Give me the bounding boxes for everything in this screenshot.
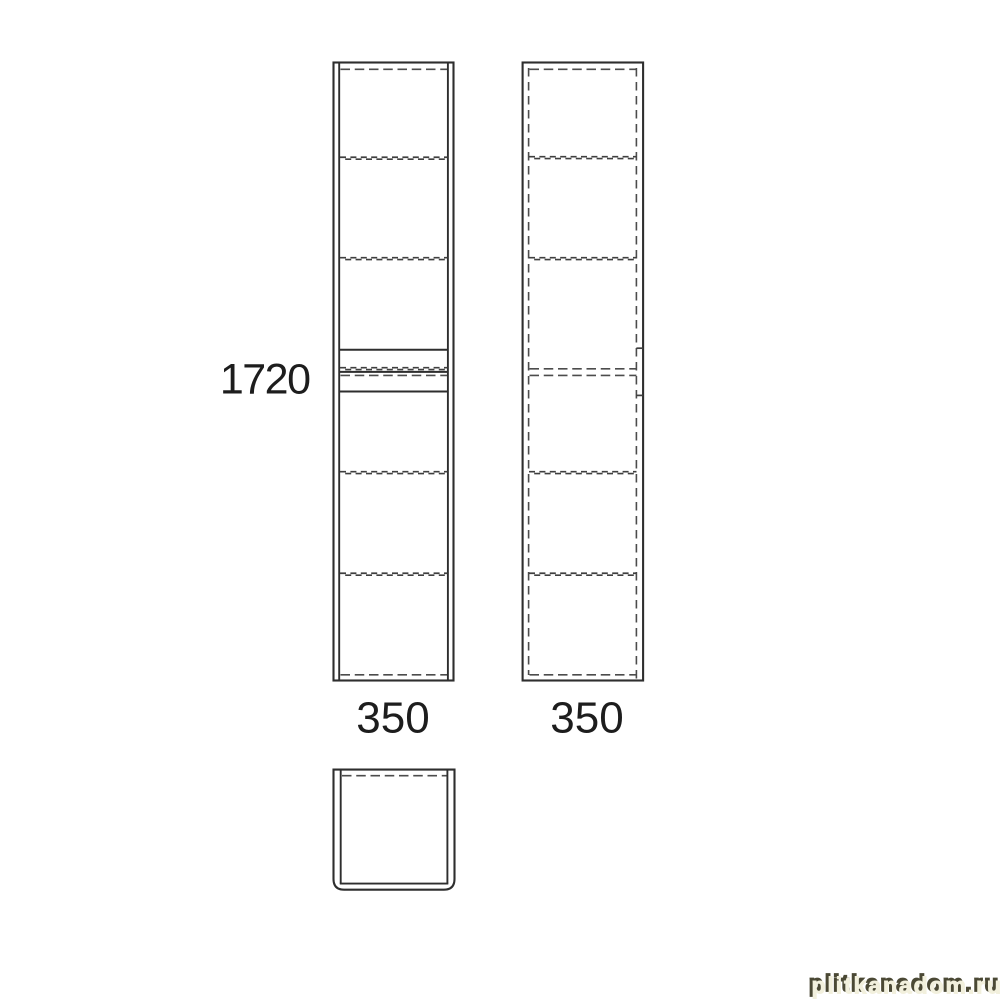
svg-text:350: 350: [550, 694, 623, 743]
svg-text:1720: 1720: [220, 356, 310, 404]
svg-text:plitkanadom.ru: plitkanadom.ru: [812, 972, 1000, 998]
svg-text:350: 350: [356, 694, 429, 743]
